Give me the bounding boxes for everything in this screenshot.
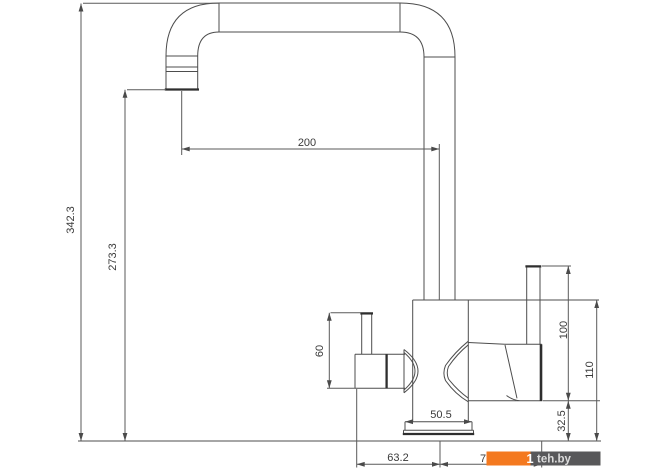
dim-label-spout-outlet-height: 273.3 (107, 243, 119, 271)
spout-top-tube (219, 3, 400, 32)
watermark-badge[interactable]: 1 teh.by (487, 451, 601, 466)
left-handle (355, 313, 418, 392)
dim-label-spout-reach: 200 (298, 137, 316, 149)
left-handle-cap-arcs (404, 350, 418, 393)
base-flange-upper (405, 422, 472, 431)
technical-drawing-canvas: 342.3 273.3 200 60 100 110 32.5 50.5 63.… (0, 0, 670, 471)
spout-aerator (166, 56, 198, 89)
left-handle-block (355, 350, 405, 393)
extension-lines (83, 3, 600, 467)
right-boss-cone-inner (447, 345, 468, 398)
spout-left-bend (166, 3, 219, 56)
right-boss-top-edge (468, 343, 505, 345)
left-lever-rod (362, 315, 372, 355)
dim-label-handle-bottom-offset: 32.5 (556, 410, 568, 431)
watermark-orange-block (487, 452, 531, 466)
right-handle-block (505, 344, 543, 400)
right-lever-rod (527, 268, 540, 345)
dim-label-overall-height: 342.3 (65, 206, 77, 234)
base-flange (403, 422, 474, 434)
dim-label-right-span-partial: 7 (480, 453, 486, 465)
dim-label-base-width: 50.5 (430, 409, 451, 421)
faucet-body (413, 300, 599, 422)
faucet-dimension-drawing: 342.3 273.3 200 60 100 110 32.5 50.5 63.… (0, 0, 670, 471)
dim-arrows (79, 4, 600, 467)
dimensions: 342.3 273.3 200 60 100 110 32.5 50.5 63.… (65, 3, 600, 467)
watermark-logo-icon: 1 (526, 451, 533, 466)
spout (165, 3, 455, 300)
dim-label-right-handle-height: 100 (558, 321, 570, 339)
spout-right-bend (400, 3, 455, 57)
dim-label-left-span: 63.2 (387, 452, 408, 464)
dim-label-left-handle-height: 60 (314, 345, 326, 357)
right-handle (444, 266, 543, 401)
dim-label-body-height: 110 (584, 361, 596, 379)
watermark-site-text: teh.by (537, 454, 571, 466)
